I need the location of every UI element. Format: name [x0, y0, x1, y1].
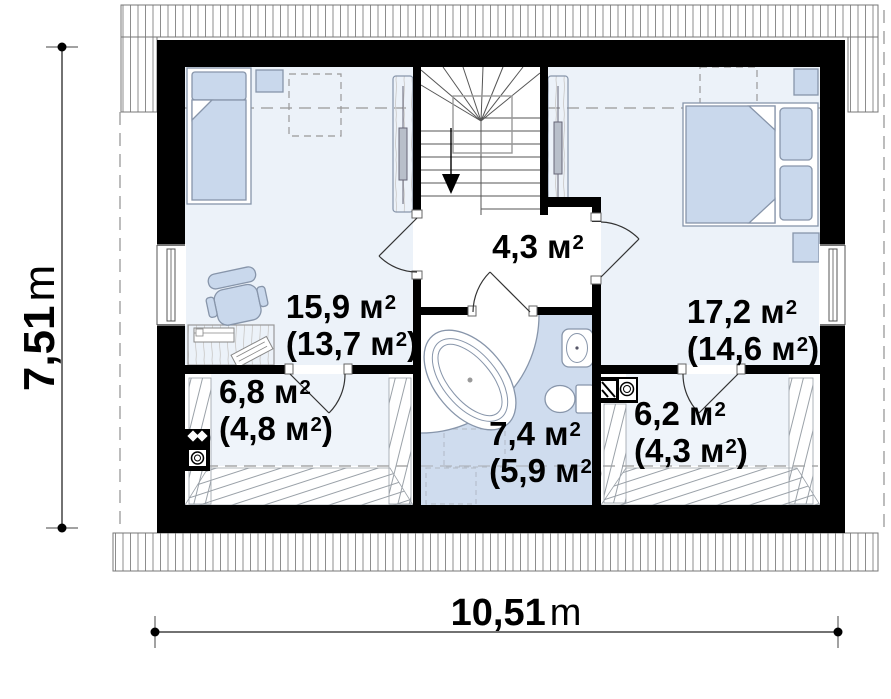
pillow: [780, 108, 812, 160]
room-area-label-bedroom-right: 17,2 м2 (14,6 м2): [687, 294, 819, 368]
area-gross: 6,2 м2: [634, 396, 748, 433]
toilet: [545, 385, 593, 413]
single-bed: [187, 68, 251, 204]
pillow: [192, 72, 246, 100]
window-left: [156, 244, 186, 326]
area-net: (4,8 м2): [219, 411, 333, 448]
room-area-label-bedroom-left: 15,9 м2 (13,7 м2): [286, 289, 418, 363]
room-area-label-hallway: 4,3 м2: [492, 229, 584, 266]
room-area-label-storage-left: 6,8 м2 (4,8 м2): [219, 374, 333, 448]
dimension-label-height: 7,51m: [15, 265, 65, 391]
dimension-label-width: 10,51m: [451, 592, 582, 635]
area-net: (4,3 м2): [634, 433, 748, 470]
area-net: (14,6 м2): [687, 331, 819, 368]
desk: [188, 325, 274, 368]
sink: [562, 329, 593, 367]
chimney-left: [185, 429, 210, 471]
area-net: (5,9 м2): [489, 453, 603, 490]
area-net: (13,7 м2): [286, 326, 418, 363]
nightstand: [793, 233, 819, 262]
staircase: [421, 67, 540, 215]
room-area-label-storage-right: 6,2 м2 (4,3 м2): [634, 396, 748, 470]
door-bathroom: [473, 272, 530, 312]
area-gross: 15,9 м2: [286, 289, 418, 326]
room-area-label-bathroom: 7,4 м2 (5,9 м2): [489, 416, 603, 490]
window-right: [819, 244, 846, 326]
double-bed: [683, 103, 818, 226]
area-gross: 6,8 м2: [219, 374, 333, 411]
wardrobe-right: [548, 76, 568, 206]
nightstand: [794, 69, 818, 95]
chimney-right: [597, 377, 638, 403]
floor-plan: 15,9 м2 (13,7 м2) 4,3 м2 17,2 м2 (14,6 м…: [0, 0, 891, 699]
wardrobe-left: [393, 76, 413, 212]
area-gross: 4,3 м2: [492, 229, 584, 266]
area-gross: 17,2 м2: [687, 294, 819, 331]
area-gross: 7,4 м2: [489, 416, 603, 453]
nightstand: [256, 70, 283, 92]
pillow: [780, 166, 812, 220]
